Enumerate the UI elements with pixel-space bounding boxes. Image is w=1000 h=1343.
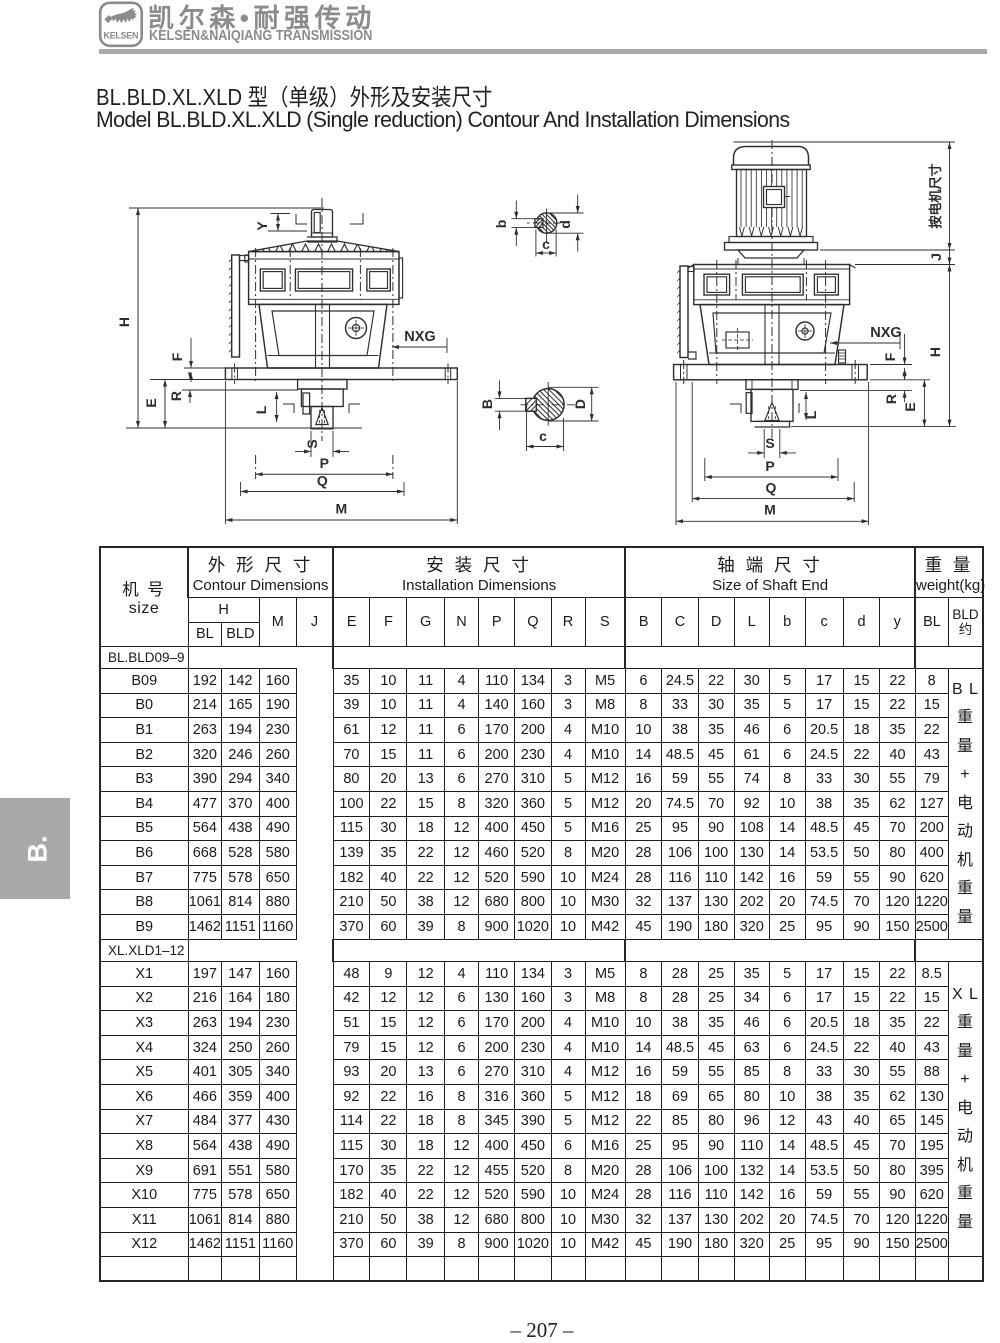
svg-text:F: F <box>882 352 898 361</box>
svg-text:NXG: NXG <box>870 325 901 341</box>
svg-text:Q: Q <box>766 480 777 496</box>
svg-text:S: S <box>765 435 774 451</box>
svg-text:E: E <box>902 402 918 411</box>
svg-text:按电机尺寸: 按电机尺寸 <box>928 163 943 228</box>
svg-text:H: H <box>927 347 943 357</box>
svg-text:J: J <box>928 253 944 261</box>
svg-text:M: M <box>764 502 776 518</box>
svg-text:P: P <box>765 458 774 474</box>
svg-text:R: R <box>883 394 899 404</box>
